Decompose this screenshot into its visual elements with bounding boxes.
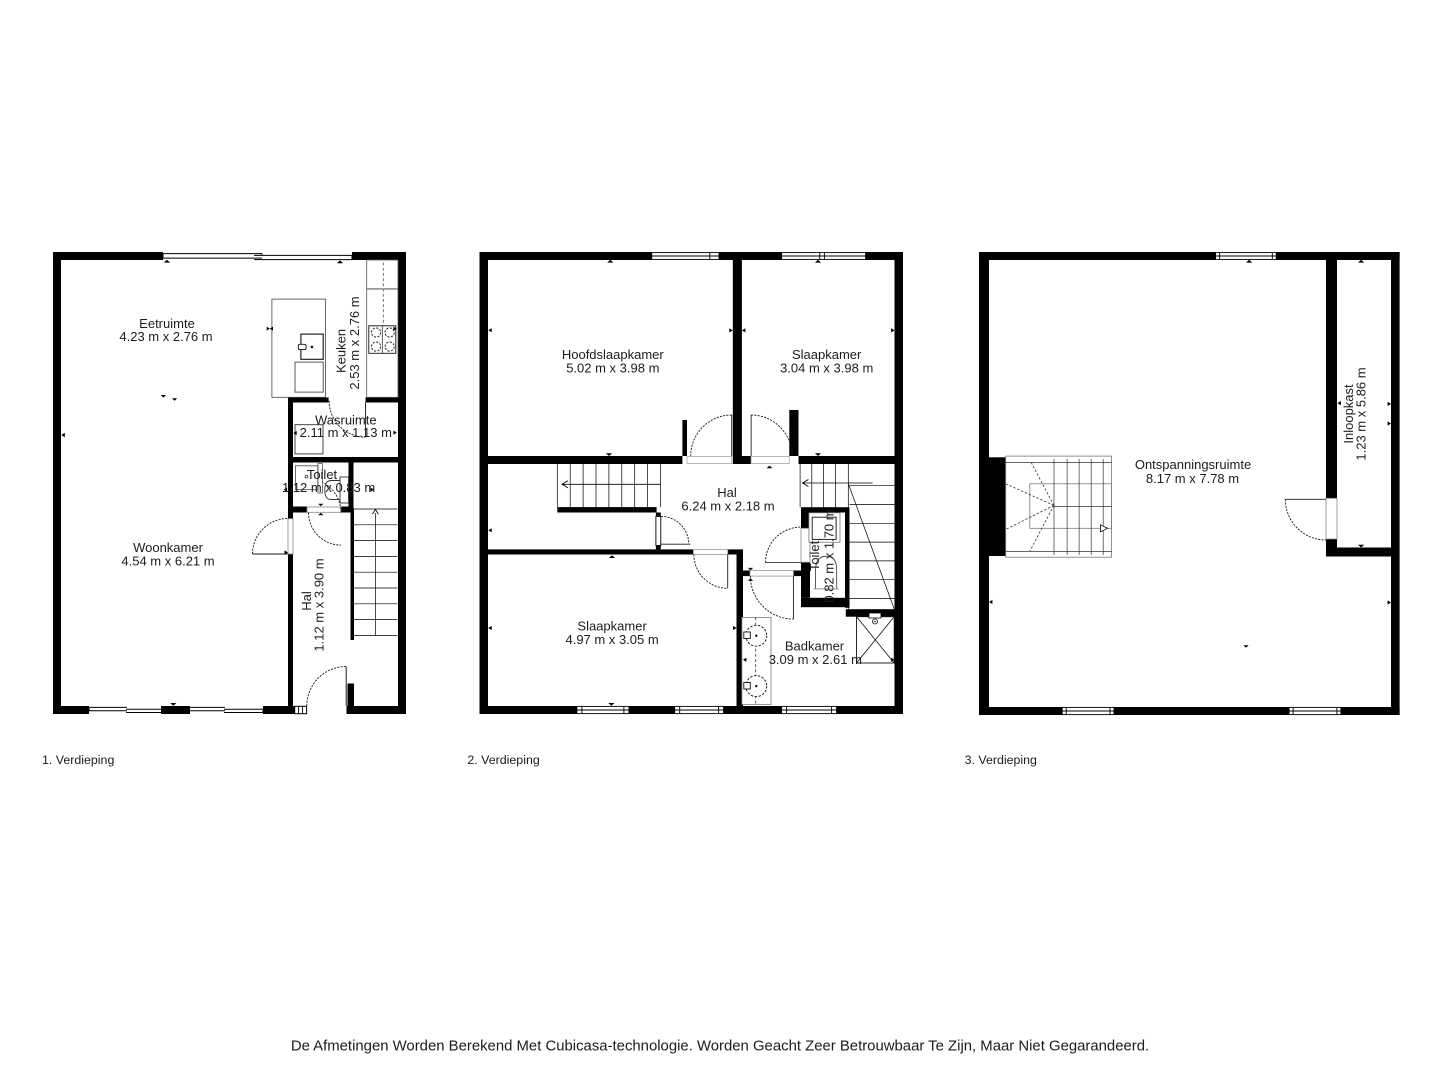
svg-text:2.11 m x 1.13 m: 2.11 m x 1.13 m xyxy=(300,425,392,440)
svg-text:6.24 m x 2.18 m: 6.24 m x 2.18 m xyxy=(681,499,774,514)
svg-text:2.53 m x 2.76 m: 2.53 m x 2.76 m xyxy=(347,296,362,389)
svg-text:8.17 m x 7.78 m: 8.17 m x 7.78 m xyxy=(1146,471,1239,486)
svg-text:1.23 m x 5.86 m: 1.23 m x 5.86 m xyxy=(1354,367,1369,460)
svg-text:1.12 m x 3.90 m: 1.12 m x 3.90 m xyxy=(312,558,327,651)
svg-text:3.04 m x 3.98 m: 3.04 m x 3.98 m xyxy=(780,361,873,376)
svg-text:Ontspanningsruimte: Ontspanningsruimte xyxy=(1135,457,1251,472)
svg-text:4.97 m x 3.05 m: 4.97 m x 3.05 m xyxy=(565,632,658,647)
svg-text:4.54 m x 6.21 m: 4.54 m x 6.21 m xyxy=(121,553,214,568)
svg-text:2. Verdieping: 2. Verdieping xyxy=(467,753,539,767)
svg-text:Toilet: Toilet xyxy=(807,540,822,571)
svg-text:De Afmetingen Worden Berekend: De Afmetingen Worden Berekend Met Cubica… xyxy=(291,1039,1149,1055)
svg-text:1. Verdieping: 1. Verdieping xyxy=(42,753,114,767)
svg-text:4.23 m x 2.76 m: 4.23 m x 2.76 m xyxy=(119,329,212,344)
svg-text:3.09 m x 2.61 m: 3.09 m x 2.61 m xyxy=(769,652,862,667)
svg-text:5.02 m x 3.98 m: 5.02 m x 3.98 m xyxy=(566,361,659,376)
svg-text:1.12 m x 0.83 m: 1.12 m x 0.83 m xyxy=(282,480,375,495)
svg-text:0.82 m x 1.70 m: 0.82 m x 1.70 m xyxy=(822,509,837,602)
svg-text:3. Verdieping: 3. Verdieping xyxy=(965,753,1037,767)
